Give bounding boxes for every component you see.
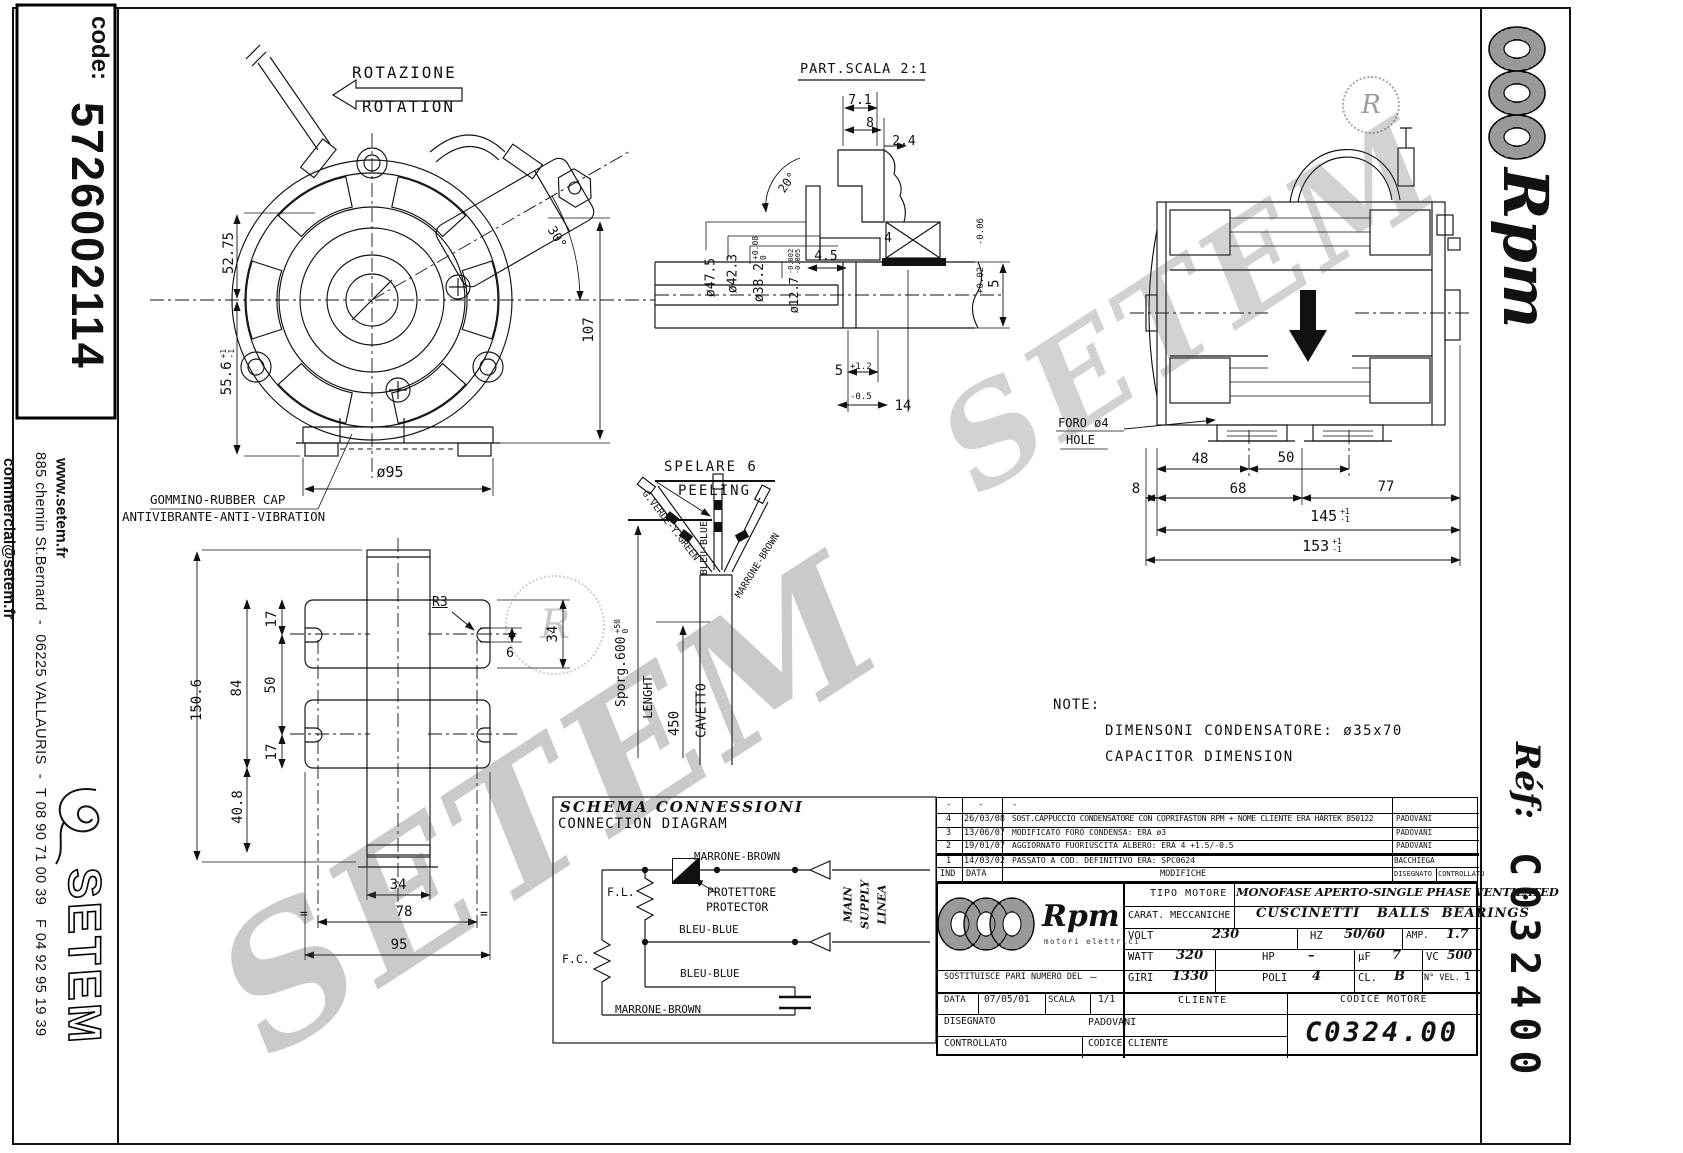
dim-50b: 50 (264, 669, 280, 701)
dim-5-tol: +1.2 -0.5 (850, 342, 872, 422)
tol-minus: -1 (1340, 516, 1350, 524)
rev-row-4-ind: 1 (946, 857, 951, 867)
dim-34r: 34 (546, 618, 562, 650)
watt-label: WATT (1128, 952, 1153, 964)
sporg-dim: Sporg.600 +500 (611, 599, 633, 727)
amp-value: 1.7 (1446, 928, 1469, 943)
peeling-label-it: SPELARE 6 (664, 460, 758, 476)
codice-cliente-label: CODICE CLIENTE (1088, 1039, 1168, 1050)
dim-8s: 8 (1126, 482, 1146, 497)
uf-value: 7 (1392, 949, 1401, 964)
cl-value: B (1394, 970, 1405, 985)
rev-row-1-by: PADOVANI (1396, 815, 1432, 823)
dim-95: 95 (383, 938, 415, 953)
setem-swan-logo (56, 789, 98, 864)
dim-68: 68 (1220, 482, 1256, 497)
protector-label-it: PROTETTORE (707, 886, 776, 899)
dim-17b: 17 (265, 737, 281, 767)
registered-stamp-top: R (1342, 76, 1400, 134)
diagram-title-it: SCHEMA CONNESSIONI (560, 799, 804, 816)
dim-145-value: 145 (1310, 508, 1337, 525)
wire-label-blue: BLEU-BLUE (699, 511, 711, 585)
peeling-label-en: PEELING (678, 484, 751, 500)
dim-5r: 5 (988, 275, 1003, 293)
hp-label: HP (1262, 952, 1275, 964)
rotation-label-it: ROTAZIONE (352, 64, 457, 82)
cavetto-label: CAVETTO (696, 676, 711, 746)
rev-row-4-data: 14/03/02 (964, 857, 1005, 867)
dim-153-value: 153 (1302, 538, 1329, 555)
rev-row-3-by: PADOVANI (1396, 842, 1432, 850)
note-line1: DIMENSONI CONDENSATORE: ø35x70 (1105, 724, 1403, 740)
hz-value: 50/60 (1344, 928, 1385, 943)
rev-row-1-mod: SOST.CAPPUCCIO CONDENSATORE CON COPRIFAS… (1012, 815, 1390, 824)
dim-450: 450 (668, 704, 683, 744)
note-line2: CAPACITOR DIMENSION (1105, 750, 1294, 766)
setem-logo-text: SETEM (52, 866, 110, 1132)
dim-107: 107 (582, 302, 598, 358)
hz-label: HZ (1310, 931, 1323, 943)
dim-34b: 34 (382, 878, 414, 893)
dim-d38-2-value: ø38.2 (753, 263, 768, 302)
tol-minus: 0 (760, 236, 768, 260)
rev-row-1-data: 26/03/08 (964, 815, 1005, 825)
rev-row-2-mod: MODIFICATO FORO CONDENSA: ERA ø3 (1012, 829, 1166, 838)
tipo-motore-label: TIPO MOTORE (1150, 888, 1227, 899)
dim-48: 48 (1182, 452, 1218, 467)
wire-blue2-label: BLEU-BLUE (680, 968, 740, 980)
code-value: 5726002114 (56, 102, 112, 418)
antivibration-label: ANTIVIBRANTE-ANTI-VIBRATION (122, 510, 325, 524)
main-supply-1: MAIN (843, 876, 856, 934)
tol-plus: +0.02 (976, 267, 986, 294)
dim-153: 153 +1-1 (1282, 536, 1362, 556)
dim-4-5: 4.5 (806, 250, 846, 264)
hole-label-en: HOLE (1066, 434, 1095, 447)
nvel-label: N° VEL. (1424, 974, 1460, 984)
dim-2-4: 2.4 (886, 135, 922, 149)
dim-d38-2: ø38.2 +0.080 (751, 231, 769, 307)
dim-150-6: 150.6 (190, 667, 206, 733)
email-text: commercial@setem.fr (0, 458, 17, 768)
cliente-label: CLIENTE (1178, 995, 1227, 1006)
disegnato-value: PADOVANI (1088, 1017, 1136, 1028)
dim-d95: ø95 (358, 464, 422, 480)
rev-row-3-mod: AGGIORNATO FUORIUSCITA ALBERO: ERA 4 +1.… (1012, 842, 1234, 851)
tol-minus: -0.5 (850, 392, 872, 402)
rev-row-0-data: - (978, 800, 983, 810)
dim-17a: 17 (265, 604, 281, 634)
rpm-logo-rings-right (1489, 27, 1545, 159)
wire-brown-top-label: MARRONE-BROWN (694, 851, 780, 863)
carat-label: CARAT. MECCANICHE (1128, 910, 1230, 921)
rev-header-mod: MODIFICHE (1160, 870, 1206, 880)
rev-row-3-ind: 2 (946, 842, 951, 852)
rev-row-4-mod: PASSATO A COD. DEFINITIVO ERA: SPC0624 (1012, 857, 1195, 866)
rev-header-drawn: DISEGNATO (1394, 871, 1432, 879)
dim-d47-5: ø47.5 (705, 248, 720, 308)
rev-row-0-mod: - (1012, 800, 1017, 810)
amp-label: AMP. (1406, 931, 1429, 942)
tol-minus: -0.005 (795, 249, 802, 274)
dim-145: 145 +1-1 (1290, 506, 1370, 526)
ref-label: Réf: (1488, 742, 1546, 850)
dim-8: 8 (858, 117, 882, 131)
poli-value: 4 (1312, 970, 1321, 985)
rev-row-3-data: 19/01/07 (964, 842, 1005, 852)
poli-label: POLI (1262, 973, 1287, 985)
dim-78: 78 (388, 905, 420, 920)
dim-77: 77 (1368, 480, 1404, 495)
uf-label: µF (1358, 952, 1371, 964)
lenght-label: LENGHT (642, 666, 656, 728)
main-supply-3: LINEA (877, 876, 890, 934)
wire-brown-bottom-label: MARRONE-BROWN (615, 1004, 701, 1016)
disegnato-label: DISEGNATO (944, 1017, 995, 1028)
dim-14: 14 (888, 399, 918, 414)
data-value: 07/05/01 (984, 995, 1030, 1006)
rev-header-ind: IND (940, 870, 955, 880)
dim-5: 5 (830, 364, 848, 379)
rev-row-2-ind: 3 (946, 829, 951, 839)
tol-plus: +1.2 (850, 362, 872, 372)
volt-label: VOLT (1128, 931, 1153, 943)
rotation-label-en: ROTATION (362, 98, 455, 116)
protector-label-en: PROTECTOR (706, 901, 768, 914)
data-label: DATA (944, 995, 966, 1005)
tipo-motore-value: MONOFASE APERTO-SINGLE PHASE VENTILATED (1236, 886, 1559, 899)
dim-6: 6 (500, 647, 520, 662)
dim-50s: 50 (1268, 451, 1304, 466)
tol-minus: -1 (228, 349, 236, 359)
tol-minus: -0.06 (976, 218, 986, 245)
rev-row-2-by: PADOVANI (1396, 829, 1432, 837)
rubber-cap-label: GOMMINO-RUBBER CAP (150, 493, 285, 507)
dim-40-8: 40.8 (231, 782, 247, 832)
fl-label: F.L. (607, 886, 635, 899)
dim-52-75: 52.75 (222, 218, 238, 288)
cl-label: CL. (1358, 973, 1377, 985)
diagram-title-en: CONNECTION DIAGRAM (558, 817, 728, 833)
dim-55-6-value: 55.6 (220, 361, 236, 395)
sostituisce-label: SOSTITUISCE PARI NUMERO DEL (944, 973, 1082, 983)
controllato-label: CONTROLLATO (944, 1039, 1007, 1050)
note-title: NOTE: (1053, 698, 1100, 714)
dim-r3: R3 (432, 596, 448, 611)
sporg-value: Sporg.600 (615, 637, 630, 707)
scala-label: SCALA (1048, 995, 1075, 1005)
codice-motore-value: C0324.00 (1290, 1014, 1474, 1052)
giri-label: GIRI (1128, 973, 1153, 985)
wire-blue1-label: BLEU-BLUE (679, 924, 739, 936)
giri-value: 1330 (1172, 970, 1208, 985)
main-supply-2: SUPPLY (860, 876, 873, 934)
codice-motore-label: CODICE MOTORE (1340, 995, 1427, 1006)
vc-label: VC (1426, 952, 1439, 964)
rev-row-2-data: 13/06/07 (964, 829, 1005, 839)
scala-value: 1/1 (1098, 995, 1115, 1006)
nvel-value: 1 (1464, 971, 1471, 983)
rpm-logo-text: Rpm (1478, 168, 1560, 343)
hole-label-it: FORO ø4 (1058, 417, 1109, 430)
fc-label: F.C. (562, 953, 590, 966)
drawing-sheet: SETEM SETEM R R code: 5726002114 885 che… (0, 0, 1683, 1153)
dim-d12-7: ø12.7 -0.002-0.005 (786, 236, 804, 326)
rev-header-checked: CONTROLLATO (1438, 871, 1484, 879)
rev-header-data: DATA (966, 870, 986, 880)
dim-7-1: 7.1 (840, 94, 880, 108)
dim-d12-7-value: ø12.7 (788, 277, 801, 313)
tblock-rpm-sub: motori elettrici (1044, 938, 1140, 946)
eq-mark-left: = (300, 908, 308, 923)
dim-d42-3: ø42.3 (727, 244, 742, 304)
dim-4: 4 (878, 232, 898, 246)
vc-value: 500 (1447, 949, 1472, 962)
rev-row-1-ind: 4 (946, 815, 951, 825)
sostituisce-value: – (1090, 971, 1097, 983)
tol-minus: 0 (622, 619, 630, 633)
tol-minus: -1 (1332, 546, 1342, 554)
hp-value: – (1308, 949, 1315, 964)
watt-value: 320 (1176, 949, 1203, 964)
volt-value: 230 (1212, 928, 1239, 943)
code-label: code: (70, 16, 112, 108)
rev-row-0-ind: - (946, 800, 951, 810)
contact-block: www.setem.fr commercial@setem.fr (58, 458, 104, 768)
dim-55-6: 55.6 +1-1 (218, 332, 238, 412)
rev-row-4-by: BACCHIEGA (1394, 857, 1435, 865)
tblock-rpm-text: Rpm (1042, 900, 1120, 934)
eq-mark-right: = (480, 908, 488, 923)
website-text: www.setem.fr (52, 458, 69, 768)
carat-value: CUSCINETTI BALLS BEARINGS (1256, 907, 1530, 922)
dim-84: 84 (230, 672, 246, 704)
detail-title: PART.SCALA 2:1 (800, 62, 928, 77)
